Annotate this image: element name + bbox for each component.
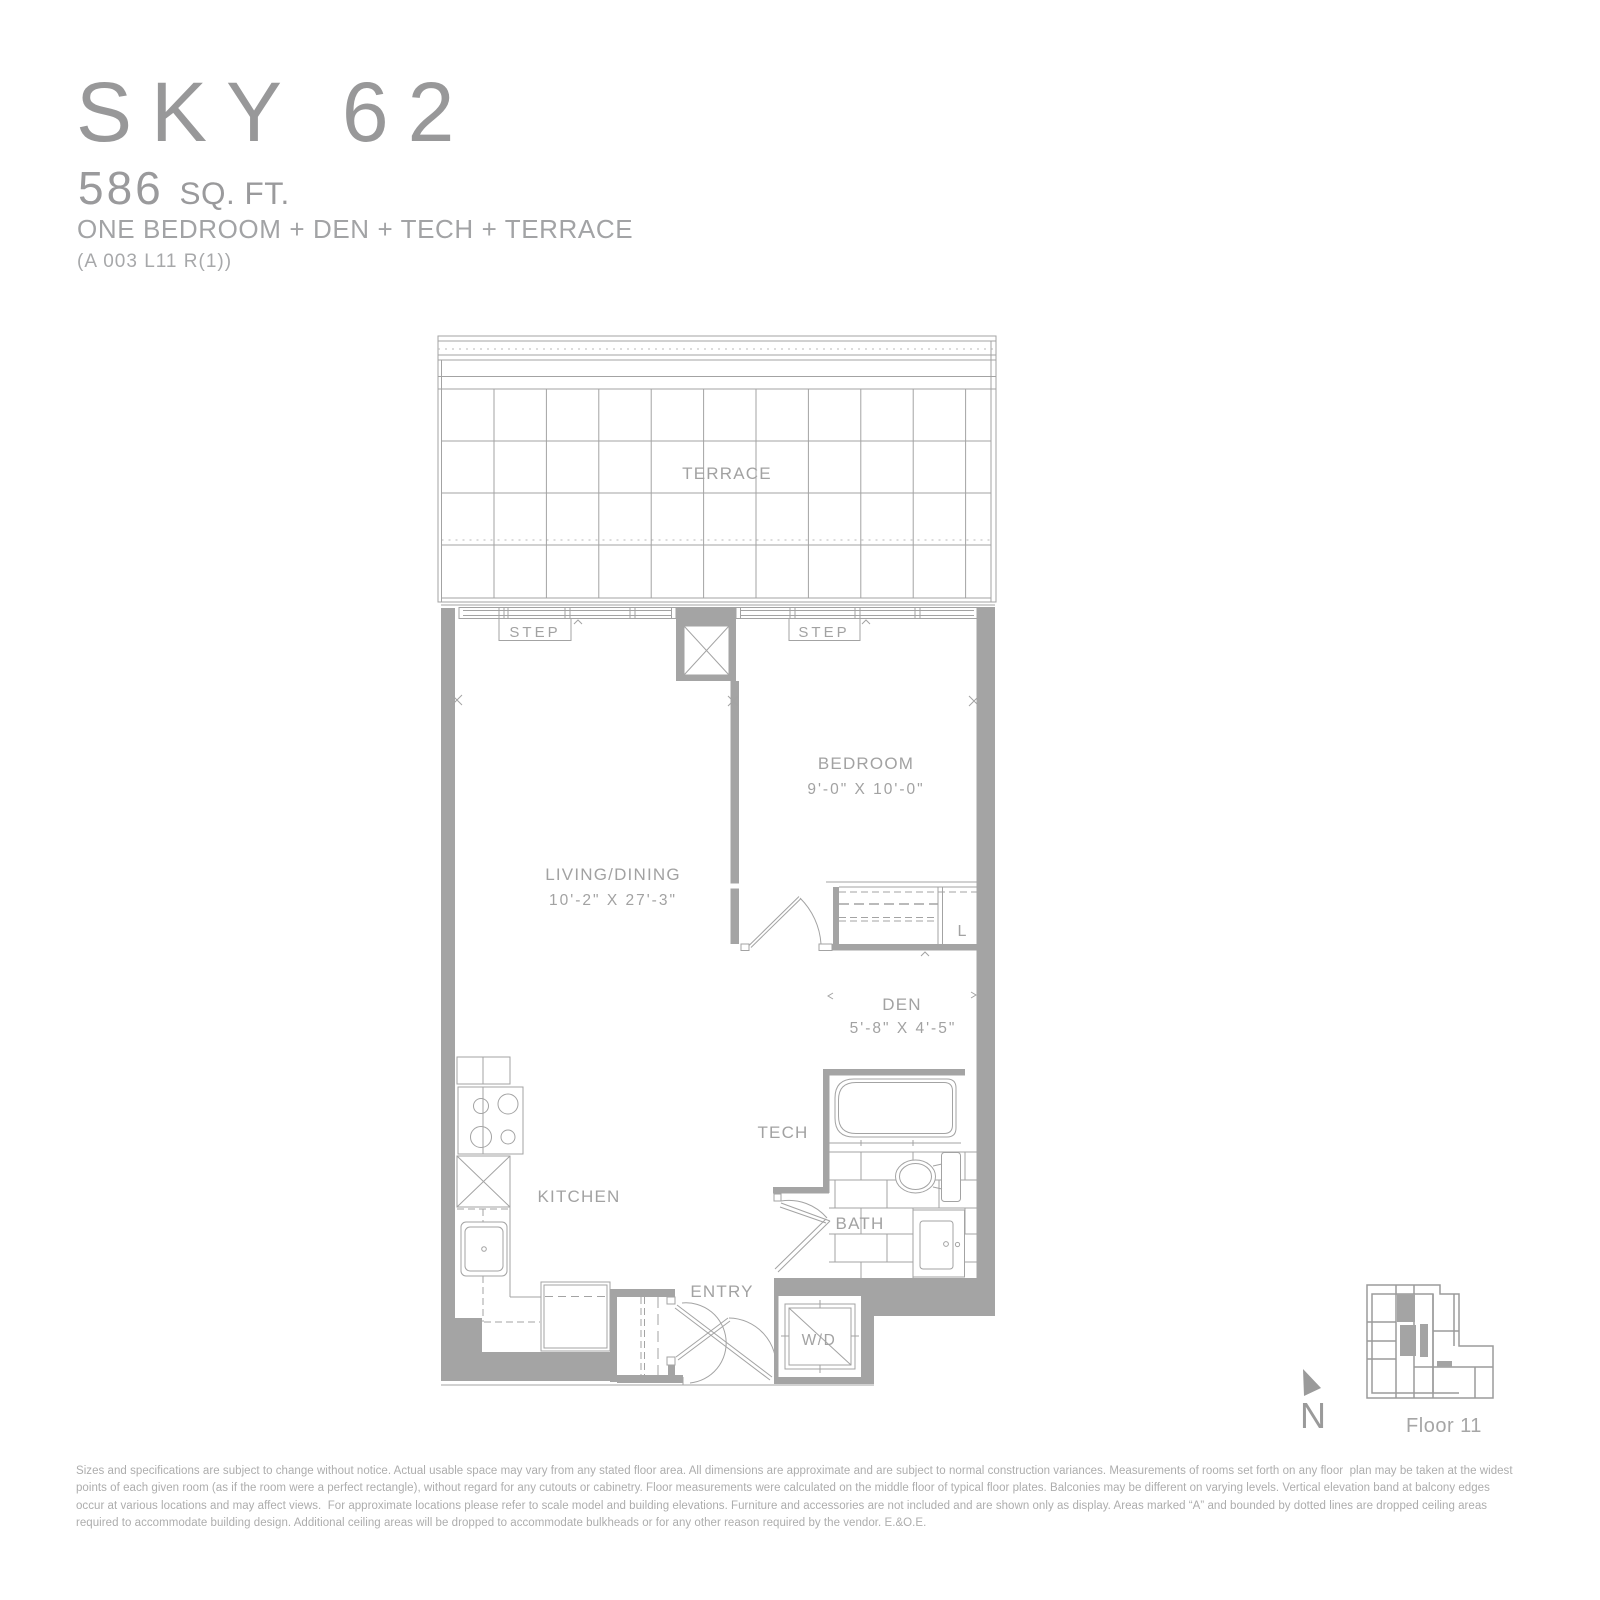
svg-text:9'-0" X 10'-0": 9'-0" X 10'-0": [807, 781, 924, 798]
svg-text:BATH: BATH: [836, 1214, 885, 1233]
svg-text:N: N: [1300, 1395, 1326, 1436]
svg-text:STEP: STEP: [509, 624, 560, 641]
svg-text:ENTRY: ENTRY: [690, 1282, 753, 1301]
svg-text:L: L: [958, 923, 967, 940]
svg-text:5'-8" X 4'-5": 5'-8" X 4'-5": [850, 1020, 957, 1037]
svg-text:W/D: W/D: [802, 1332, 837, 1349]
svg-text:TECH: TECH: [757, 1123, 808, 1142]
svg-text:STEP: STEP: [798, 624, 849, 641]
svg-text:Floor 11: Floor 11: [1406, 1415, 1482, 1437]
svg-text:BEDROOM: BEDROOM: [818, 754, 914, 773]
svg-text:LIVING/DINING: LIVING/DINING: [545, 865, 681, 884]
svg-text:TERRACE: TERRACE: [682, 464, 772, 483]
svg-text:KITCHEN: KITCHEN: [537, 1187, 620, 1206]
svg-text:DEN: DEN: [882, 995, 922, 1014]
svg-text:10'-2" X 27'-3": 10'-2" X 27'-3": [549, 892, 677, 909]
